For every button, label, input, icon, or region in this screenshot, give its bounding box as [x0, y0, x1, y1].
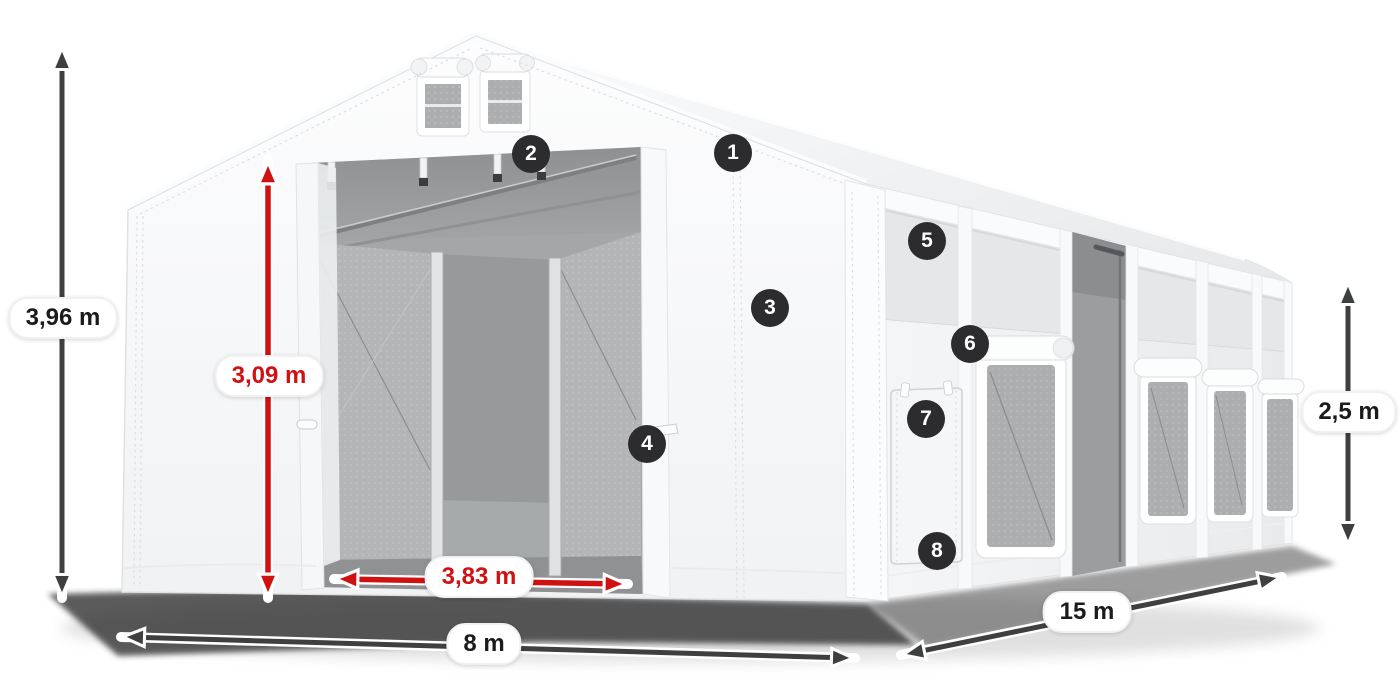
side-window	[1202, 369, 1258, 522]
door-handle	[297, 420, 317, 429]
gable-vent-window	[476, 54, 535, 132]
window-roller	[1258, 379, 1304, 394]
dim-label-side-wall-height: 2,5 m	[1301, 391, 1396, 433]
callout-7: 7	[907, 400, 945, 438]
callout-4: 4	[628, 425, 666, 463]
inner-door-post	[549, 258, 561, 576]
callout-3: 3	[751, 289, 789, 327]
callout-1: 1	[714, 134, 752, 172]
callout-8: 8	[918, 532, 956, 570]
dim-label-side-length: 15 m	[1043, 591, 1132, 633]
window-roller	[1134, 358, 1202, 377]
tent-entrance-interior	[300, 140, 650, 600]
dim-label-entrance-width: 3,83 m	[425, 556, 534, 598]
window-roller	[1202, 369, 1258, 386]
callout-6: 6	[951, 325, 989, 363]
callout-5: 5	[908, 222, 946, 260]
side-window	[1134, 358, 1202, 524]
dim-label-total-height: 3,96 m	[9, 297, 118, 339]
callout-2: 2	[512, 135, 550, 173]
dim-label-entrance-height: 3,09 m	[215, 355, 324, 397]
gable-vent-window	[411, 58, 473, 136]
side-window	[968, 336, 1074, 558]
side-door-opening	[1072, 232, 1126, 576]
inner-door-post	[431, 252, 443, 574]
tent-dimension-diagram: 3,96 m 3,09 m 3,83 m 8 m 15 m 2,5 m 1 2 …	[0, 0, 1400, 700]
dim-label-front-width: 8 m	[446, 623, 521, 665]
corner-post	[845, 180, 888, 601]
tent-illustration	[0, 0, 1400, 700]
side-window	[1258, 379, 1304, 517]
